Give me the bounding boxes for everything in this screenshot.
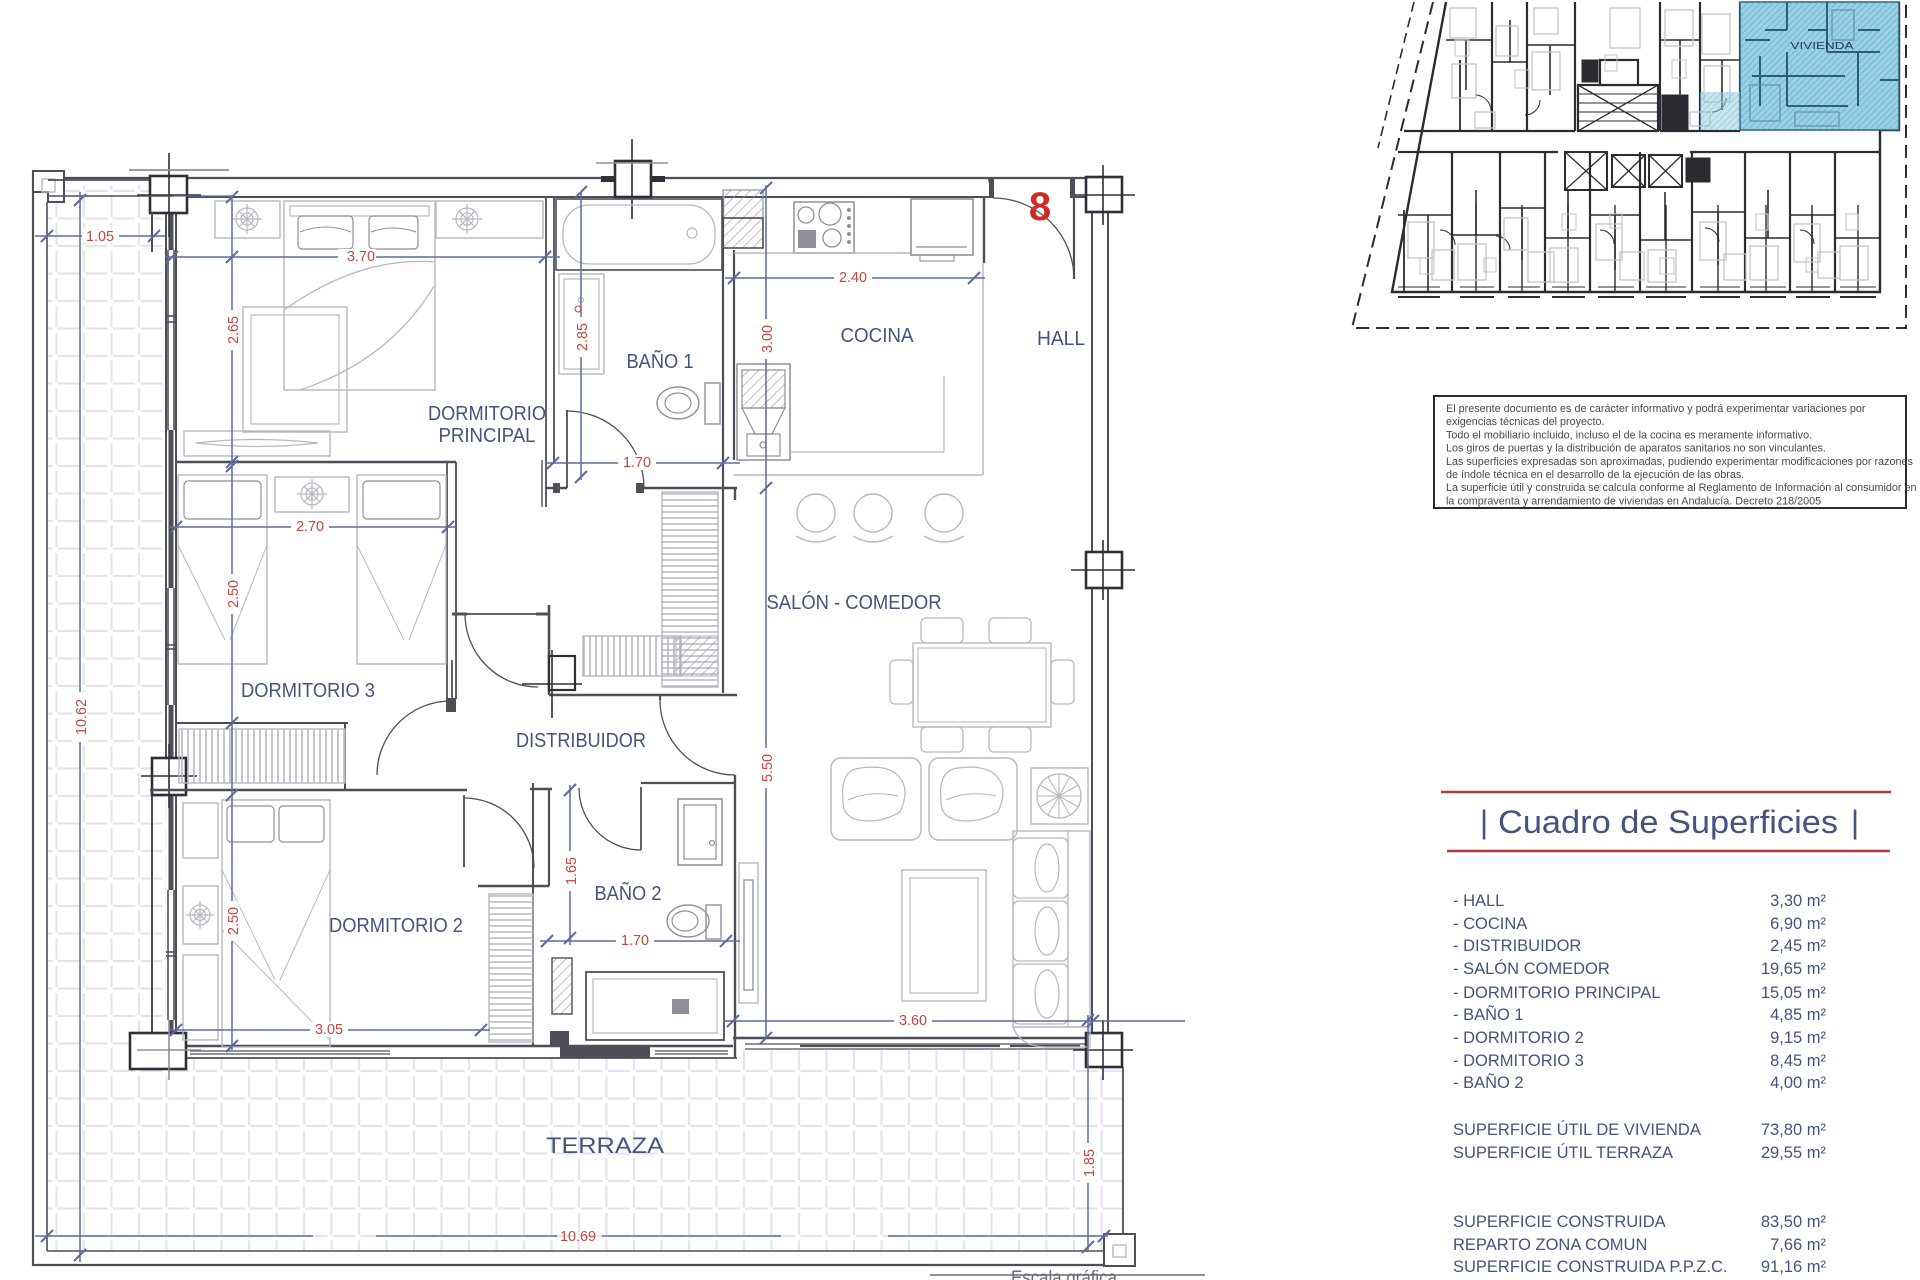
svg-text:PRINCIPAL: PRINCIPAL: [439, 424, 536, 447]
svg-text:SUPERFICIE CONSTRUIDA P.P.Z.C.: SUPERFICIE CONSTRUIDA P.P.Z.C.: [1453, 1258, 1727, 1276]
svg-text:10.69: 10.69: [560, 1229, 596, 1245]
svg-text:1.05: 1.05: [86, 229, 114, 245]
svg-text:2.50: 2.50: [226, 580, 242, 608]
svg-text:4,00 m²: 4,00 m²: [1770, 1074, 1826, 1092]
svg-text:El presente documento es de ca: El presente documento es de carácter inf…: [1446, 403, 1866, 415]
svg-text:- SALÓN COMEDOR: - SALÓN COMEDOR: [1453, 959, 1610, 978]
svg-text:91,16 m²: 91,16 m²: [1761, 1258, 1827, 1276]
svg-text:Cuadro de Superficies: Cuadro de Superficies: [1498, 804, 1838, 840]
svg-text:2.70: 2.70: [296, 519, 324, 535]
svg-text:BAÑO 2: BAÑO 2: [595, 882, 662, 905]
svg-text:1.65: 1.65: [564, 857, 580, 885]
svg-text:2.40: 2.40: [839, 270, 867, 286]
svg-text:La superficie útil y construid: La superficie útil y construida se calcu…: [1446, 482, 1917, 494]
svg-text:- DORMITORIO 3: - DORMITORIO 3: [1453, 1052, 1584, 1070]
svg-text:1.70: 1.70: [623, 455, 651, 471]
svg-text:de índole técnica en el desarr: de índole técnica en el desarrollo de la…: [1446, 469, 1744, 481]
svg-text:BAÑO 1: BAÑO 1: [627, 350, 694, 373]
svg-text:- HALL: - HALL: [1453, 892, 1504, 910]
svg-text:|: |: [1851, 804, 1859, 840]
svg-text:|: |: [1480, 804, 1488, 840]
svg-text:DORMITORIO 2: DORMITORIO 2: [329, 914, 463, 937]
svg-text:DISTRIBUIDOR: DISTRIBUIDOR: [516, 729, 646, 752]
svg-text:2.65: 2.65: [226, 316, 242, 344]
svg-text:TERRAZA: TERRAZA: [546, 1133, 664, 1158]
svg-text:- DISTRIBUIDOR: - DISTRIBUIDOR: [1453, 937, 1581, 955]
svg-text:HALL: HALL: [1037, 327, 1085, 350]
svg-text:DORMITORIO 3: DORMITORIO 3: [241, 679, 375, 702]
svg-text:29,55 m²: 29,55 m²: [1761, 1144, 1827, 1162]
svg-text:7,66 m²: 7,66 m²: [1770, 1236, 1826, 1254]
svg-text:- BAÑO 2: - BAÑO 2: [1453, 1072, 1524, 1092]
svg-text:3.60: 3.60: [899, 1013, 927, 1029]
svg-text:10.62: 10.62: [74, 699, 90, 735]
svg-text:2.50: 2.50: [226, 907, 242, 935]
svg-text:Todo el mobiliario incluido, i: Todo el mobiliario incluido, incluso el …: [1446, 429, 1812, 441]
svg-text:la compraventa y arrendamiento: la compraventa y arrendamiento de vivien…: [1446, 495, 1821, 507]
svg-text:3.70: 3.70: [347, 249, 375, 265]
svg-text:- DORMITORIO PRINCIPAL: - DORMITORIO PRINCIPAL: [1453, 984, 1661, 1002]
svg-text:Las superficies expresadas son: Las superficies expresadas son aproximad…: [1446, 456, 1914, 468]
svg-text:2.85: 2.85: [575, 323, 591, 351]
svg-text:3.00: 3.00: [760, 325, 776, 353]
svg-text:VIVIENDA: VIVIENDA: [1791, 40, 1854, 52]
svg-text:73,80 m²: 73,80 m²: [1761, 1121, 1827, 1139]
svg-text:9,15 m²: 9,15 m²: [1770, 1029, 1826, 1047]
svg-text:5.50: 5.50: [760, 754, 776, 782]
svg-text:2,45 m²: 2,45 m²: [1770, 937, 1826, 955]
svg-text:REPARTO ZONA COMUN: REPARTO ZONA COMUN: [1453, 1236, 1647, 1254]
svg-text:4,85 m²: 4,85 m²: [1770, 1006, 1826, 1024]
svg-text:- BAÑO 1: - BAÑO 1: [1453, 1004, 1524, 1024]
svg-text:15,05 m²: 15,05 m²: [1761, 984, 1827, 1002]
svg-text:SUPERFICIE ÚTIL TERRAZA: SUPERFICIE ÚTIL TERRAZA: [1453, 1143, 1673, 1162]
svg-text:- DORMITORIO 2: - DORMITORIO 2: [1453, 1029, 1584, 1047]
svg-text:Los giros de puertas y la dist: Los giros de puertas y la distribución d…: [1446, 443, 1826, 455]
svg-text:SALÓN - COMEDOR: SALÓN - COMEDOR: [767, 591, 942, 614]
svg-text:exigencias técnicas del proyec: exigencias técnicas del proyecto.: [1446, 416, 1604, 428]
svg-text:1.70: 1.70: [621, 933, 649, 949]
svg-text:Escala gráfica: Escala gráfica: [1011, 1268, 1117, 1280]
svg-text:8: 8: [1029, 185, 1051, 229]
svg-text:- COCINA: - COCINA: [1453, 915, 1527, 933]
svg-text:3.05: 3.05: [315, 1022, 343, 1038]
svg-text:SUPERFICIE ÚTIL DE VIVIENDA: SUPERFICIE ÚTIL DE VIVIENDA: [1453, 1120, 1701, 1139]
svg-text:3,30 m²: 3,30 m²: [1770, 892, 1826, 910]
svg-text:COCINA: COCINA: [841, 324, 914, 347]
svg-text:19,65 m²: 19,65 m²: [1761, 960, 1827, 978]
svg-text:6,90 m²: 6,90 m²: [1770, 915, 1826, 933]
svg-text:DORMITORIO: DORMITORIO: [428, 402, 546, 425]
svg-text:83,50 m²: 83,50 m²: [1761, 1213, 1827, 1231]
svg-text:1.85: 1.85: [1082, 1149, 1098, 1177]
svg-text:8,45 m²: 8,45 m²: [1770, 1052, 1826, 1070]
svg-text:SUPERFICIE CONSTRUIDA: SUPERFICIE CONSTRUIDA: [1453, 1213, 1666, 1231]
